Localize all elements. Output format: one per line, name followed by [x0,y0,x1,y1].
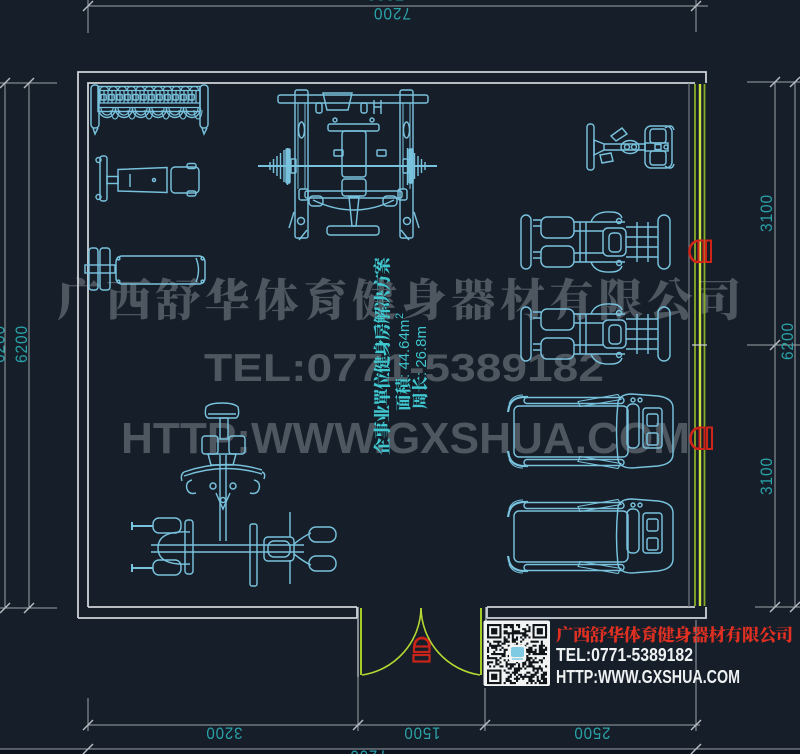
svg-text:2: 2 [394,313,406,319]
svg-text:3200: 3200 [206,724,243,743]
svg-text:6200: 6200 [778,322,797,360]
svg-text:HTTP:WWW.GXSHUA.COM: HTTP:WWW.GXSHUA.COM [121,414,690,463]
svg-text:3100: 3100 [757,457,776,495]
svg-text:7200: 7200 [373,4,411,23]
svg-text:: 26.8m: : 26.8m [413,326,430,376]
svg-text:2500: 2500 [574,724,611,743]
svg-text:TEL:0771-5389182: TEL:0771-5389182 [556,645,693,665]
svg-text:6200: 6200 [12,325,31,363]
svg-text:1500: 1500 [404,724,441,743]
svg-text:7200: 7200 [366,0,404,4]
svg-text:3100: 3100 [757,194,776,232]
svg-text:7200: 7200 [350,747,387,754]
svg-text:6200: 6200 [0,325,9,363]
svg-text:: 44.64m: : 44.64m [396,320,413,378]
svg-text:HTTP:WWW.GXSHUA.COM: HTTP:WWW.GXSHUA.COM [556,667,740,687]
